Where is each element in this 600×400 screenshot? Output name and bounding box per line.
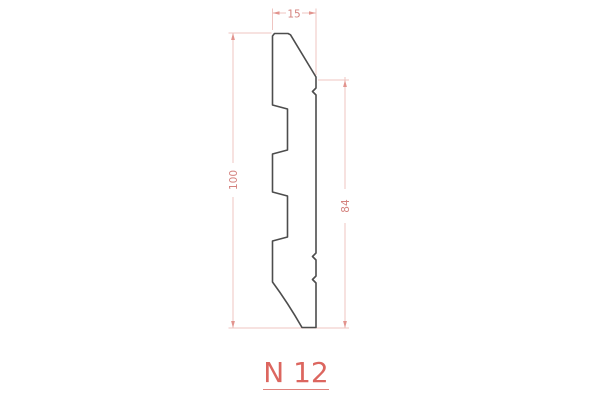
profile-drawing: 15 100 84 (0, 0, 600, 400)
dimension-text-width: 15 (287, 9, 300, 21)
arrowhead-width-right (309, 11, 316, 15)
profile-label: N 12 (263, 358, 329, 390)
arrowhead-width-left (273, 11, 280, 15)
profile-outline (273, 34, 317, 328)
drawing-canvas: 15 100 84 N 12 (0, 0, 600, 400)
arrowhead-total-top (231, 33, 235, 40)
arrowhead-face-top (343, 80, 347, 87)
dimension-text-total-height: 100 (228, 170, 240, 190)
arrowhead-face-bottom (343, 321, 347, 328)
dimension-text-face-height: 84 (340, 199, 352, 213)
arrowhead-total-bottom (231, 321, 235, 328)
